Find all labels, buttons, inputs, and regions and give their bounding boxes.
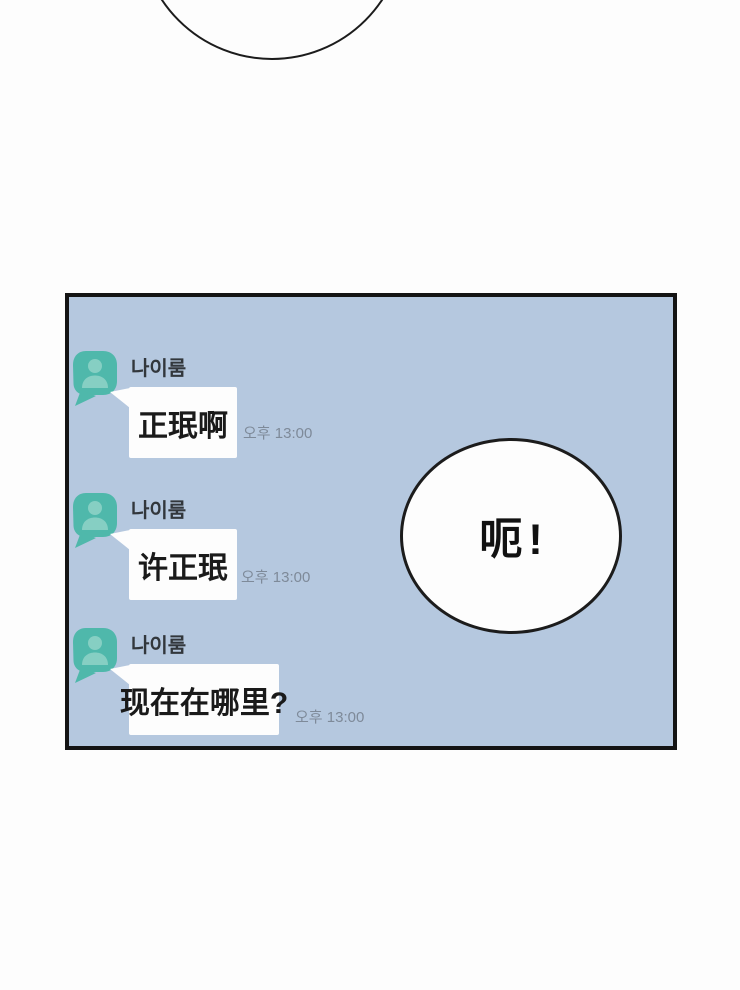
chat-message: 나이룸 现在在哪里? 오후 13:00	[72, 627, 492, 762]
message-text: 正珉啊	[138, 401, 228, 445]
sender-name: 나이룸	[131, 352, 186, 381]
sender-name: 나이룸	[131, 629, 186, 658]
top-speech-bubble	[139, 0, 405, 60]
chat-message: 나이룸 正珉啊 오후 13:00	[72, 350, 492, 485]
timestamp: 오후 13:00	[295, 706, 364, 727]
sender-name: 나이룸	[131, 494, 186, 523]
shout-text: 呃!	[473, 505, 548, 567]
message-text: 现在在哪里?	[120, 678, 288, 722]
message-bubble: 许正珉	[129, 529, 237, 600]
message-bubble: 正珉啊	[129, 387, 237, 458]
message-bubble: 现在在哪里?	[129, 664, 279, 735]
timestamp: 오후 13:00	[243, 422, 312, 443]
shout-speech-bubble: 呃!	[400, 438, 622, 634]
timestamp: 오후 13:00	[241, 566, 310, 587]
message-text: 许正珉	[138, 543, 228, 587]
chat-panel: 나이룸 正珉啊 오후 13:00 나이룸 许正珉 오후 13:00	[65, 293, 677, 750]
